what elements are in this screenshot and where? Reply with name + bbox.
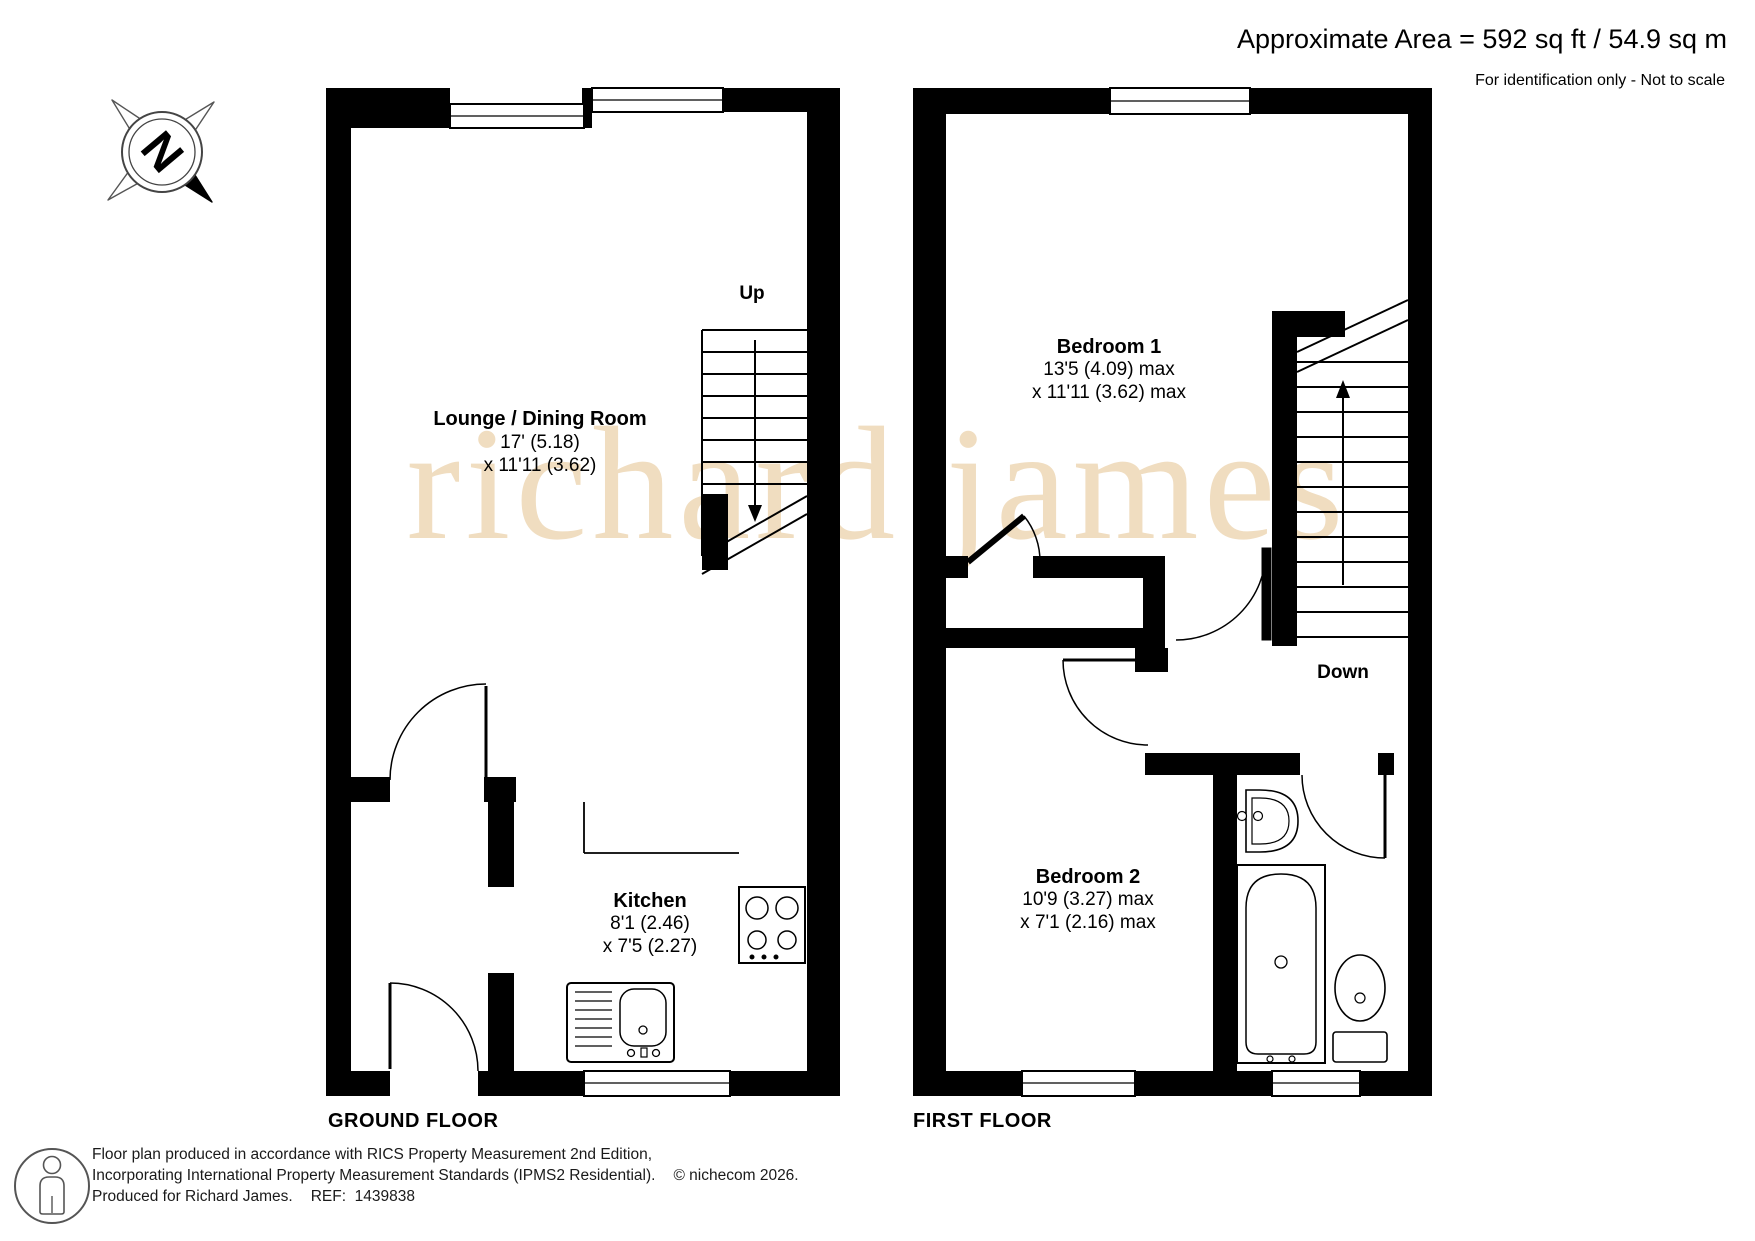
ff-bedroom2-window (1022, 1071, 1135, 1096)
kitchen-room-name: Kitchen (613, 890, 686, 913)
ff-bedroom2-door (1063, 660, 1148, 745)
first-floor-plan (913, 88, 1432, 1096)
ff-bathroom-wall (1213, 753, 1237, 1071)
bedroom1-room-dim2: x 11'11 (3.62) max (1032, 382, 1186, 404)
gf-kitchen-window (584, 1071, 730, 1096)
ff-stairwell-wall (1272, 311, 1297, 646)
bedroom1-room-name: Bedroom 1 (1057, 336, 1161, 359)
ff-landing-door (1176, 548, 1271, 640)
toilet-icon (1333, 955, 1387, 1062)
kitchen-room-dim1: 8'1 (2.46) (610, 913, 690, 935)
compass-rose-icon: N (108, 100, 214, 202)
stairs-up-label: Up (739, 283, 764, 305)
bedroom2-room-dim1: 10'9 (3.27) max (1022, 889, 1153, 911)
ff-bathroom-door (1302, 775, 1385, 858)
bedroom2-room-name: Bedroom 2 (1036, 866, 1140, 889)
gf-hall-door (390, 684, 486, 780)
ff-left-wall (913, 88, 946, 1096)
scale-disclaimer-text: For identification only - Not to scale (1475, 72, 1725, 90)
person-icon (15, 1149, 89, 1223)
ground-floor-title: GROUND FLOOR (328, 1110, 498, 1133)
ff-stairs-direction-arrow (1336, 380, 1350, 585)
floorplan-page: richard james N (0, 0, 1755, 1241)
bathtub-icon (1237, 865, 1325, 1063)
footer-copyright: © nichecom 2026. (673, 1167, 798, 1184)
bedroom1-room-dim1: 13'5 (4.09) max (1043, 359, 1174, 381)
lounge-room-dim1: 17' (5.18) (500, 432, 580, 454)
lounge-room-name: Lounge / Dining Room (433, 408, 646, 431)
approximate-area-text: Approximate Area = 592 sq ft / 54.9 sq m (1237, 24, 1727, 55)
ff-bathroom-window (1272, 1071, 1360, 1096)
footer-line2: Incorporating International Property Mea… (92, 1165, 799, 1186)
gf-front-door-opening (390, 1069, 478, 1098)
gf-left-wall (326, 88, 351, 1096)
kitchen-room-dim2: x 7'5 (2.27) (603, 936, 697, 958)
footer-produced-for: Produced for Richard James. (92, 1188, 293, 1205)
footer-line3: Produced for Richard James.REF: 1439838 (92, 1186, 799, 1207)
ff-stairs (1297, 300, 1408, 637)
gf-stairs-direction-arrow (748, 340, 762, 522)
floorplan-drawing: N (0, 0, 1755, 1241)
gf-kitchen-boundary (584, 802, 739, 853)
stairs-down-label: Down (1317, 662, 1369, 684)
lounge-room-dim2: x 11'11 (3.62) (484, 455, 597, 477)
basin-icon (1238, 790, 1299, 852)
bedroom2-room-dim2: x 7'1 (2.16) max (1020, 912, 1156, 934)
gf-front-door (390, 983, 478, 1071)
ff-front-window (1110, 88, 1250, 114)
footer-credits: Floor plan produced in accordance with R… (92, 1144, 799, 1207)
ff-right-wall (1408, 88, 1432, 1096)
hob-icon (739, 887, 805, 963)
footer-ref-value: 1439838 (355, 1188, 415, 1205)
footer-line1: Floor plan produced in accordance with R… (92, 1144, 799, 1165)
footer-ref-label: REF: (311, 1188, 346, 1205)
ff-bedroom1-door (968, 516, 1040, 562)
gf-right-wall (807, 88, 840, 1096)
footer-ipms-text: Incorporating International Property Mea… (92, 1167, 655, 1184)
ground-floor-plan (326, 88, 840, 1098)
first-floor-title: FIRST FLOOR (913, 1110, 1052, 1133)
sink-icon (567, 983, 674, 1062)
